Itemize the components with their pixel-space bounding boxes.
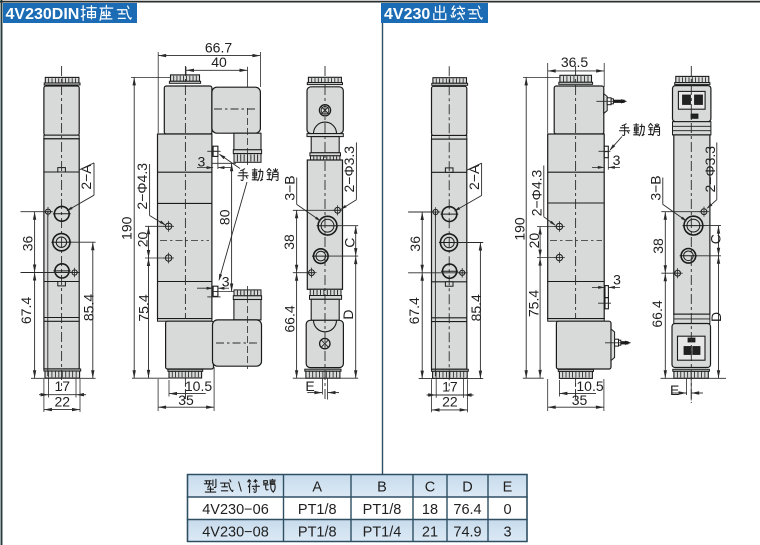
svg-text:PT1/8: PT1/8 — [298, 524, 337, 540]
svg-text:22: 22 — [55, 393, 71, 409]
svg-text:38: 38 — [650, 238, 666, 254]
svg-text:2−A: 2−A — [78, 164, 94, 190]
svg-text:PT1/8: PT1/8 — [298, 502, 337, 518]
svg-text:3: 3 — [613, 152, 621, 168]
svg-text:190: 190 — [512, 217, 528, 241]
svg-text:190: 190 — [119, 216, 135, 240]
svg-text:67.4: 67.4 — [18, 297, 34, 324]
svg-text:35: 35 — [178, 392, 194, 408]
svg-text:35: 35 — [572, 392, 588, 408]
svg-text:75.4: 75.4 — [526, 290, 542, 317]
svg-text:D: D — [708, 312, 724, 322]
svg-text:E: E — [670, 382, 679, 398]
svg-text:2−Φ3.3: 2−Φ3.3 — [341, 146, 357, 193]
svg-text:C: C — [341, 238, 357, 248]
svg-text:40: 40 — [211, 54, 227, 70]
svg-text:38: 38 — [281, 234, 297, 250]
svg-text:66.4: 66.4 — [281, 305, 297, 332]
svg-text:2−Φ3.3: 2−Φ3.3 — [702, 146, 718, 193]
svg-text:2−Φ4.3: 2−Φ4.3 — [134, 163, 150, 210]
svg-text:66.7: 66.7 — [205, 39, 232, 55]
svg-text:4V230−06: 4V230−06 — [202, 502, 269, 518]
svg-text:4V230DIN: 4V230DIN — [6, 6, 80, 23]
svg-text:A: A — [312, 480, 322, 496]
svg-text:2−Φ4.3: 2−Φ4.3 — [528, 169, 544, 216]
svg-text:18: 18 — [422, 502, 438, 518]
svg-text:\: \ — [238, 479, 242, 495]
svg-text:C: C — [708, 234, 724, 244]
svg-text:0: 0 — [503, 502, 511, 518]
svg-text:C: C — [425, 480, 435, 496]
svg-text:20: 20 — [135, 232, 151, 248]
svg-text:3−B: 3−B — [648, 175, 664, 200]
svg-text:3: 3 — [613, 271, 621, 287]
svg-text:E: E — [305, 378, 314, 394]
svg-text:17: 17 — [55, 378, 71, 394]
svg-text:36.5: 36.5 — [561, 54, 588, 70]
svg-text:D: D — [340, 309, 356, 319]
svg-text:3−B: 3−B — [281, 175, 297, 200]
svg-text:36: 36 — [19, 236, 35, 252]
svg-text:66.4: 66.4 — [649, 300, 665, 327]
svg-text:74.9: 74.9 — [453, 524, 481, 540]
svg-text:3: 3 — [222, 274, 230, 290]
svg-text:B: B — [377, 480, 387, 496]
svg-text:76.4: 76.4 — [453, 502, 481, 518]
svg-text:20: 20 — [526, 233, 542, 249]
svg-text:3: 3 — [503, 524, 511, 540]
svg-text:4V230: 4V230 — [384, 6, 430, 23]
svg-text:D: D — [462, 480, 472, 496]
svg-text:85.4: 85.4 — [81, 294, 97, 321]
svg-text:80: 80 — [217, 209, 233, 225]
svg-text:3: 3 — [198, 154, 206, 170]
svg-text:75.4: 75.4 — [136, 294, 152, 321]
svg-text:21: 21 — [422, 524, 438, 540]
svg-text:4V230−08: 4V230−08 — [202, 524, 269, 540]
svg-text:PT1/8: PT1/8 — [363, 502, 402, 518]
svg-text:E: E — [503, 480, 513, 496]
svg-text:PT1/4: PT1/4 — [363, 524, 402, 540]
